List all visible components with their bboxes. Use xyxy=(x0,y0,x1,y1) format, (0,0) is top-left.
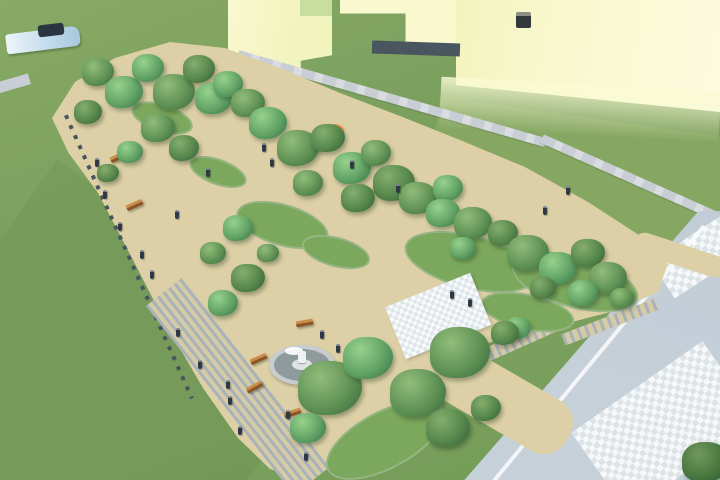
person xyxy=(468,298,472,307)
person xyxy=(228,396,232,405)
person xyxy=(270,158,274,167)
person xyxy=(103,190,107,199)
person xyxy=(304,452,308,461)
person xyxy=(95,158,99,167)
park-rendering xyxy=(0,0,720,480)
person xyxy=(450,290,454,299)
person xyxy=(238,426,242,435)
person xyxy=(396,184,400,193)
person xyxy=(286,410,290,419)
person xyxy=(118,222,122,231)
person xyxy=(226,380,230,389)
person xyxy=(140,250,144,259)
person xyxy=(262,143,266,152)
tree xyxy=(430,327,490,378)
person xyxy=(198,360,202,369)
person xyxy=(566,186,570,195)
person xyxy=(350,160,354,169)
figure xyxy=(516,12,531,28)
person xyxy=(543,206,547,215)
tree xyxy=(682,442,720,480)
building-window-band xyxy=(300,0,332,16)
person xyxy=(206,168,210,177)
fountain-sculpture xyxy=(298,351,306,363)
person xyxy=(175,210,179,219)
person xyxy=(176,328,180,337)
person xyxy=(336,344,340,353)
person xyxy=(150,270,154,279)
person xyxy=(320,330,324,339)
